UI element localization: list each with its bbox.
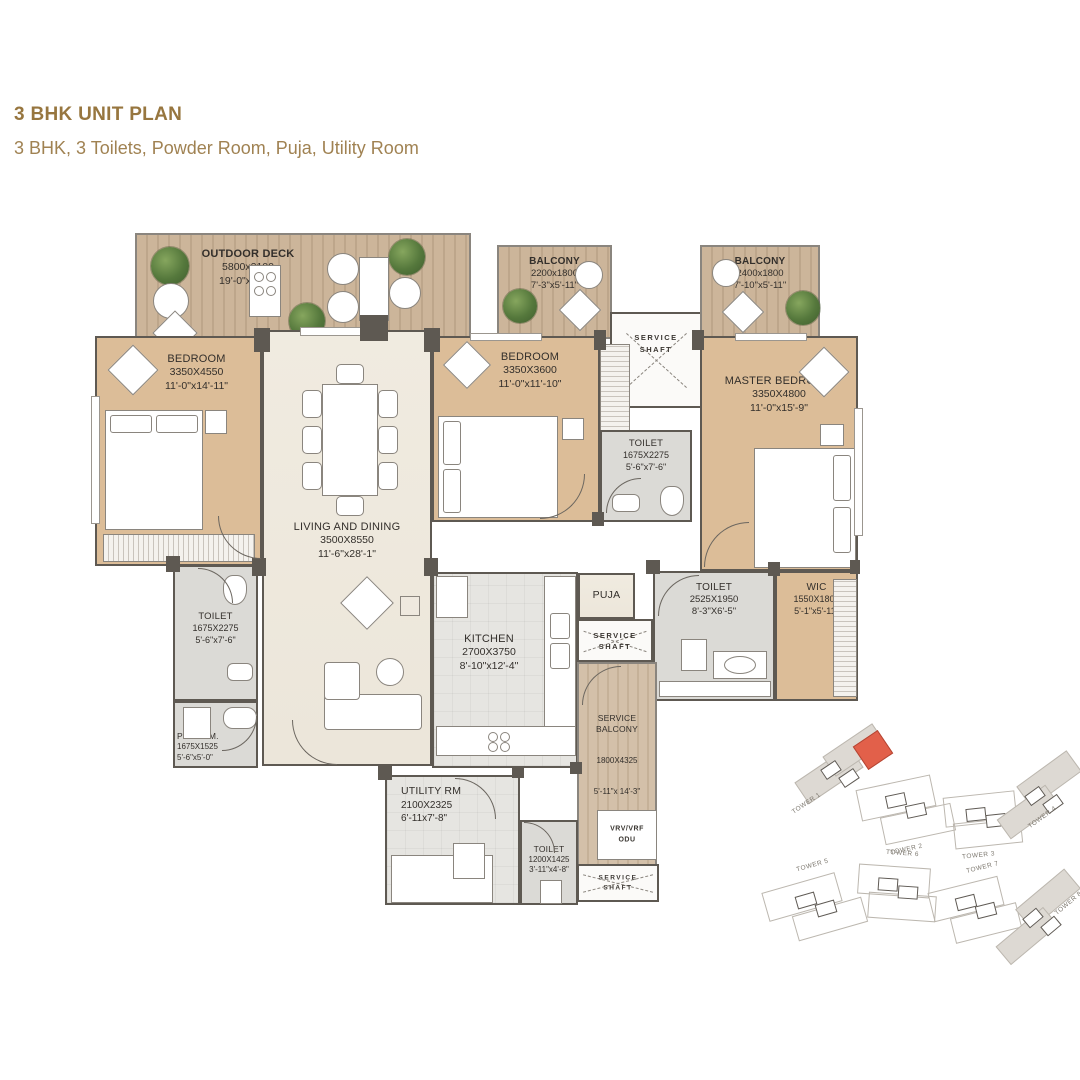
room-puja: PUJA [578,573,635,619]
room-label: SERVICE BALCONY 1800X4325 5'-11"x 14'-3" [579,692,655,818]
dining-table [322,384,378,496]
stove-burner [500,742,510,752]
window [470,333,542,341]
bed [754,448,856,568]
wall-column [850,560,860,574]
service-shaft-mid: SERVICE SHAFT [577,619,653,662]
deck-dining-table [359,257,389,321]
balcony-lounge-chair [722,291,764,333]
plant-icon [389,239,425,275]
burner [266,272,276,282]
keyplan: TOWER 1 TOWER 2 TOWER 3 TOWER 4 TOWER 5 … [740,700,1080,990]
bed [105,410,203,530]
toilet-basin [724,656,756,674]
keyplan-tower-8: TOWER 8 [988,872,1080,982]
pillow [833,507,851,553]
stove-burner [500,732,510,742]
stove-burner [488,742,498,752]
burner [254,272,264,282]
room-label: TOILET 1675X2275 5'-6"x7'-6" [175,611,256,647]
room-label: LIVING AND DINING 3500X8550 11'-6"x28'-1… [264,520,430,562]
shower-tray [659,681,771,697]
pillow [110,415,152,433]
vrv-odu-unit: VRV/VRF ODU [597,810,657,860]
toilet-wc [681,639,707,671]
room-label: KITCHEN 2700X3750 8'-10"x12'-4" [418,632,560,674]
pillow [833,455,851,501]
wall-column [646,560,660,574]
dining-chair [336,364,364,384]
dining-chair [378,426,398,454]
bedside-table [562,418,584,440]
balcony-table [712,259,740,287]
shaft-label: SERVICE SHAFT [579,873,657,893]
dining-chair [336,496,364,516]
dining-chair [302,390,322,418]
room-label: PUJA [580,589,633,603]
tower-core [878,877,899,891]
washing-machine [453,843,485,879]
room-label: UTILITY RM 2100X2325 6'-11x7'-8" [401,785,461,825]
room-label: TOILET 1675X2275 5'-6"x7'-6" [602,438,690,474]
window [735,333,807,341]
sofa-chaise [324,662,360,700]
tower-label: TOWER 6 [886,849,919,858]
vrv-label: VRV/VRF ODU [598,825,656,846]
tower-core [898,885,919,899]
kitchen-counter [544,576,576,728]
room-kitchen: KITCHEN 2700X3750 8'-10"x12'-4" [432,572,578,768]
wall-column [592,512,604,526]
toilet-basin [227,663,253,681]
dining-chair [378,390,398,418]
room-wic: WIC 1550X1800 5'-1"x5'-11" [775,571,858,701]
balcony-lounge-chair [559,289,601,331]
deck-chair [327,253,359,285]
burner [266,286,276,296]
shaft-label: SERVICE SHAFT [579,629,651,652]
pillow [443,421,461,465]
wall-column [768,562,780,576]
wall-column [512,766,524,778]
plant-icon [151,247,189,285]
keyplan-tower-4: TOWER 4 [992,756,1080,856]
tower-core [965,807,986,822]
service-shaft-bottom: SERVICE SHAFT [577,864,659,902]
wall-column [252,558,266,576]
armchair [340,576,394,630]
bedside-table [205,410,227,434]
room-outdoor-deck: OUTDOOR DECK 5800x2100 19'-0"x6'-11" [135,233,471,339]
bbq-grill [249,265,281,317]
window [91,396,100,524]
pillow [443,469,461,513]
wall-column [254,328,270,352]
plant-icon [503,289,537,323]
wall-column [424,328,440,352]
coffee-table [376,658,404,686]
bedside-table [820,424,844,446]
wall-column [360,315,388,341]
wall-column [594,330,606,350]
wall-column [378,766,392,780]
dining-chair [302,426,322,454]
stove-burner [488,732,498,742]
deck-chair [327,291,359,323]
toilet-wc [540,880,562,904]
kitchen-sink [550,643,570,669]
room-balcony-1: BALCONY 2200x1800 7'-3"x5'-11" [497,245,612,339]
wall-column [424,558,438,576]
tower-label: TOWER 5 [796,858,830,874]
wardrobe [833,579,857,697]
room-balcony-2: BALCONY 2400x1800 7'-10"x5'-11" [700,245,820,339]
window [854,408,863,536]
balcony-table [575,261,603,289]
burner [254,286,264,296]
wall-column [166,556,180,572]
fridge [436,576,468,618]
wall-column [570,762,582,774]
side-table [400,596,420,616]
toilet-wc [660,486,684,516]
toilet-vanity [713,651,767,679]
dining-chair [378,462,398,490]
room-living-dining: LIVING AND DINING 3500X8550 11'-6"x28'-1… [262,330,432,766]
powder-wc [183,707,211,739]
wardrobe [600,344,630,432]
deck-chair [389,277,421,309]
wall-column [692,330,704,350]
plant-icon [786,291,820,325]
pillow [156,415,198,433]
room-utility: UTILITY RM 2100X2325 6'-11x7'-8" [385,775,520,905]
dining-chair [302,462,322,490]
kitchen-sink [550,613,570,639]
